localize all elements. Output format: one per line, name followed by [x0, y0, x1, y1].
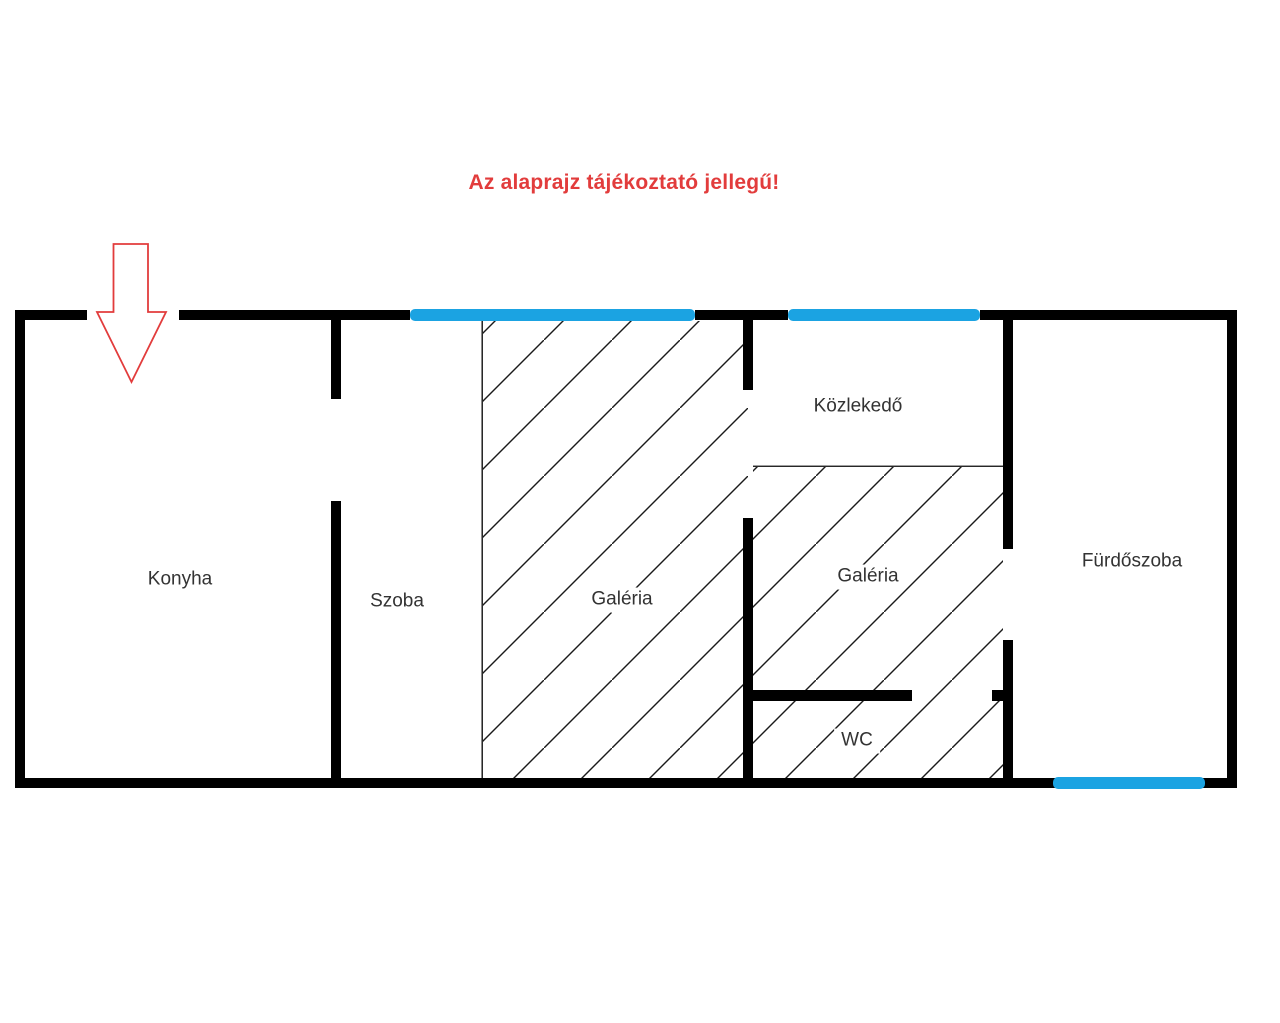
wall-wc-top-stub — [992, 690, 1003, 701]
wall-top-between-windows — [695, 310, 788, 320]
wall-left — [15, 310, 25, 788]
entrance-arrow-icon — [97, 244, 166, 382]
room-label-szoba: Szoba — [363, 590, 431, 615]
wall-konyha-szoba-upper — [331, 320, 341, 399]
room-label-wc: WC — [834, 729, 880, 754]
wall-konyha-szoba-lower — [331, 501, 341, 778]
room-label-furdoszoba: Fürdőszoba — [1075, 550, 1189, 575]
wall-top-right — [980, 310, 1237, 320]
wall-top-left-of-entrance — [15, 310, 87, 320]
wall-galeria-kozlekedo-upper — [743, 320, 753, 390]
room-label-kozlekedo: Közlekedő — [807, 395, 910, 420]
floorplan-canvas: Az alaprajz tájékoztató jellegű! — [0, 0, 1280, 1023]
room-label-galeria-left: Galéria — [584, 588, 659, 613]
szoba-galeria-partition-line — [482, 320, 483, 778]
wall-furdoszoba-lower — [1003, 640, 1013, 778]
window-bottom-furdoszoba — [1053, 777, 1205, 789]
wall-top-konyha-szoba — [179, 310, 410, 320]
kozlekedo-galeria-partition-line — [753, 466, 1003, 467]
wall-furdoszoba-upper — [1003, 320, 1013, 549]
floorplan-drawing — [0, 0, 1280, 1023]
wall-wc-top — [748, 690, 912, 701]
window-top-kozlekedo — [788, 309, 980, 321]
galeria-left-hatch-area — [483, 321, 748, 778]
room-label-konyha: Konyha — [141, 568, 219, 593]
window-top-galeria — [410, 309, 695, 321]
wall-galeria-kozlekedo-lower — [743, 518, 753, 778]
room-label-galeria-right: Galéria — [830, 565, 905, 590]
wall-right — [1227, 310, 1237, 788]
